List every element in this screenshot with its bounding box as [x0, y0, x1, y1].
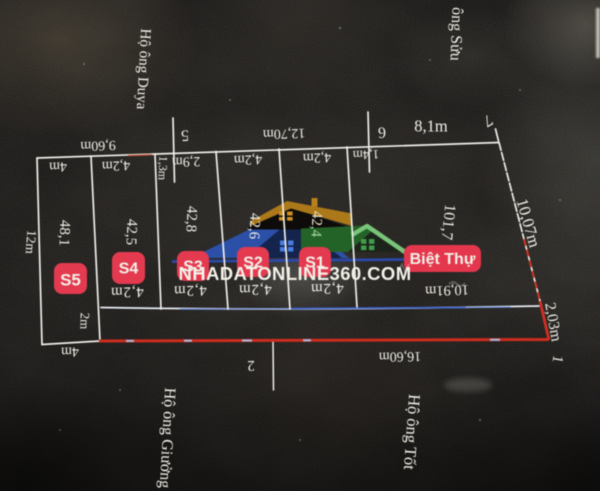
svg-text:4,2m: 4,2m: [101, 157, 130, 173]
svg-text:ông Sửu: ông Sửu: [447, 7, 466, 61]
svg-text:12m: 12m: [23, 229, 40, 254]
svg-text:9,60m: 9,60m: [80, 137, 116, 153]
svg-text:4,2m: 4,2m: [173, 282, 207, 299]
svg-text:42,8: 42,8: [183, 206, 200, 233]
svg-text:S5: S5: [60, 271, 81, 290]
svg-text:12,70m: 12,70m: [262, 125, 305, 141]
svg-text:5: 5: [181, 126, 190, 143]
svg-text:8,1m: 8,1m: [414, 117, 448, 136]
svg-text:4m: 4m: [49, 158, 68, 174]
svg-text:42,6: 42,6: [246, 213, 263, 240]
svg-text:NHADATONLINE360.COM: NHADATONLINE360.COM: [178, 263, 411, 284]
svg-text:10,91m: 10,91m: [424, 281, 469, 299]
svg-text:48,1: 48,1: [56, 220, 73, 247]
svg-text:S4: S4: [119, 261, 139, 278]
svg-text:2m: 2m: [77, 312, 93, 329]
svg-text:16,60m: 16,60m: [379, 348, 422, 364]
svg-text:4,2m: 4,2m: [110, 283, 144, 300]
svg-text:1,4m: 1,4m: [353, 147, 380, 163]
svg-text:2: 2: [247, 357, 255, 373]
svg-text:42,4: 42,4: [308, 211, 325, 238]
svg-text:Biệt Thự: Biệt Thự: [410, 251, 476, 268]
svg-text:6: 6: [378, 123, 387, 140]
svg-text:4,2m: 4,2m: [302, 149, 331, 165]
svg-text:1,3m: 1,3m: [156, 156, 171, 181]
svg-text:42,5: 42,5: [123, 219, 140, 246]
svg-text:4m: 4m: [61, 343, 79, 358]
svg-text:2,9m: 2,9m: [171, 153, 200, 169]
svg-text:4,2m: 4,2m: [233, 151, 262, 167]
